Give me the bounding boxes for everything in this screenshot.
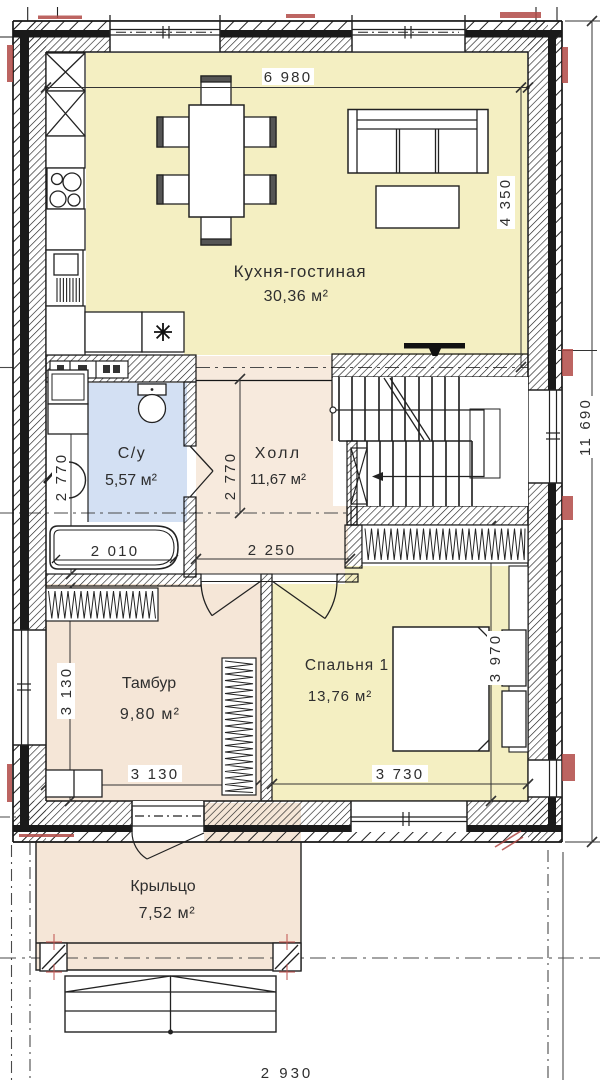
svg-text:6 980: 6 980 — [264, 69, 313, 86]
svg-text:4 350: 4 350 — [497, 178, 514, 227]
svg-text:11 690: 11 690 — [577, 398, 594, 456]
svg-text:2 250: 2 250 — [248, 542, 297, 559]
svg-text:11,67 м²: 11,67 м² — [250, 471, 306, 488]
svg-text:9,80 м²: 9,80 м² — [120, 706, 180, 723]
svg-text:2 770: 2 770 — [222, 452, 239, 501]
svg-text:Тамбур: Тамбур — [122, 675, 176, 692]
svg-text:30,36 м²: 30,36 м² — [264, 288, 329, 305]
svg-text:3 130: 3 130 — [58, 667, 75, 716]
svg-text:7,52 м²: 7,52 м² — [139, 905, 196, 922]
svg-text:С/у: С/у — [118, 445, 147, 462]
svg-text:3 130: 3 130 — [131, 766, 180, 783]
svg-text:Спальня 1: Спальня 1 — [305, 657, 389, 674]
svg-text:3 730: 3 730 — [376, 766, 425, 783]
svg-text:3 970: 3 970 — [487, 634, 504, 683]
svg-text:5,57 м²: 5,57 м² — [105, 472, 158, 489]
svg-text:2 770: 2 770 — [53, 453, 70, 502]
svg-text:2 930: 2 930 — [261, 1065, 314, 1080]
svg-text:Холл: Холл — [255, 445, 302, 462]
svg-text:2 010: 2 010 — [91, 543, 140, 560]
svg-text:13,76 м²: 13,76 м² — [308, 688, 372, 705]
svg-text:Кухня-гостиная: Кухня-гостиная — [234, 262, 367, 281]
svg-text:Крыльцо: Крыльцо — [130, 878, 195, 895]
